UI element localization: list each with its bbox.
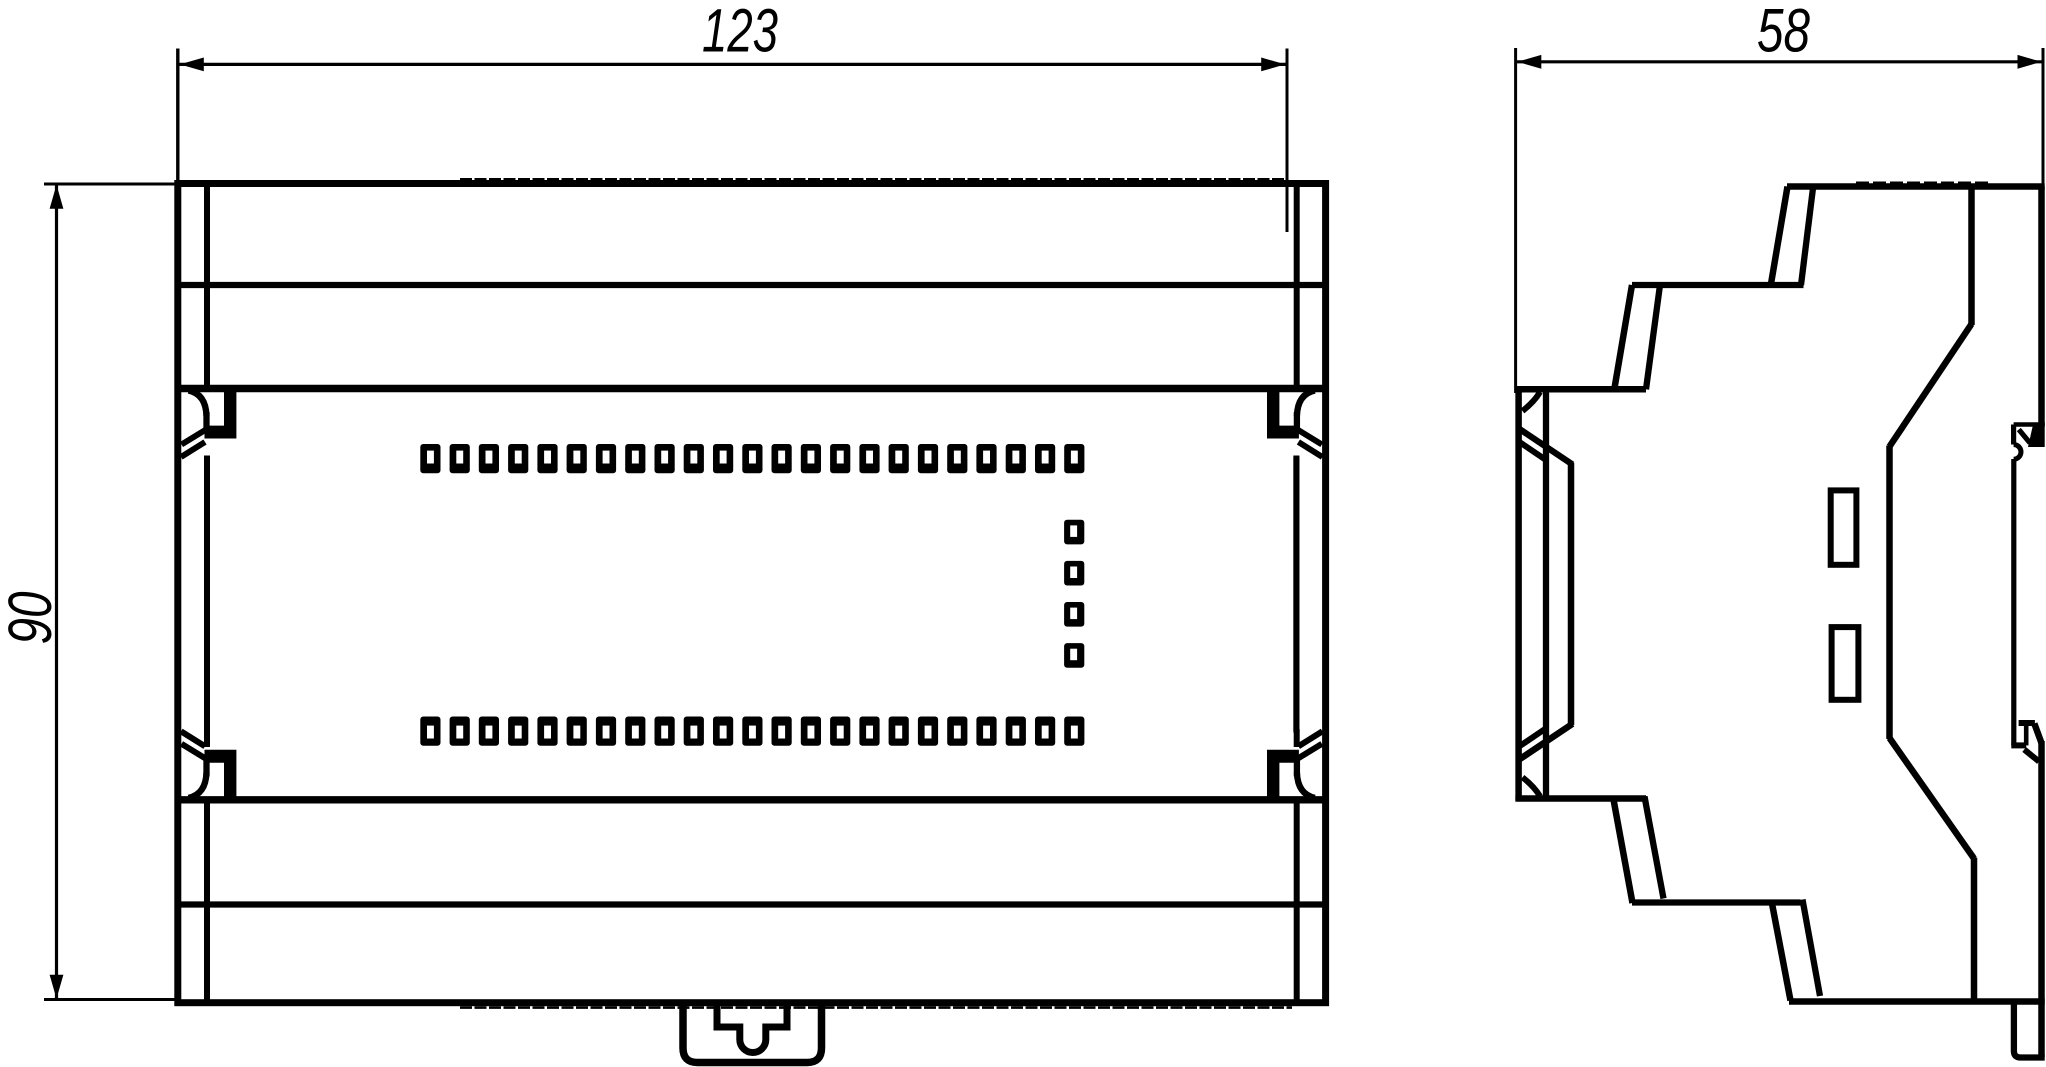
- svg-text:90: 90: [0, 591, 64, 644]
- svg-text:123: 123: [702, 0, 778, 65]
- svg-text:58: 58: [1757, 0, 1810, 65]
